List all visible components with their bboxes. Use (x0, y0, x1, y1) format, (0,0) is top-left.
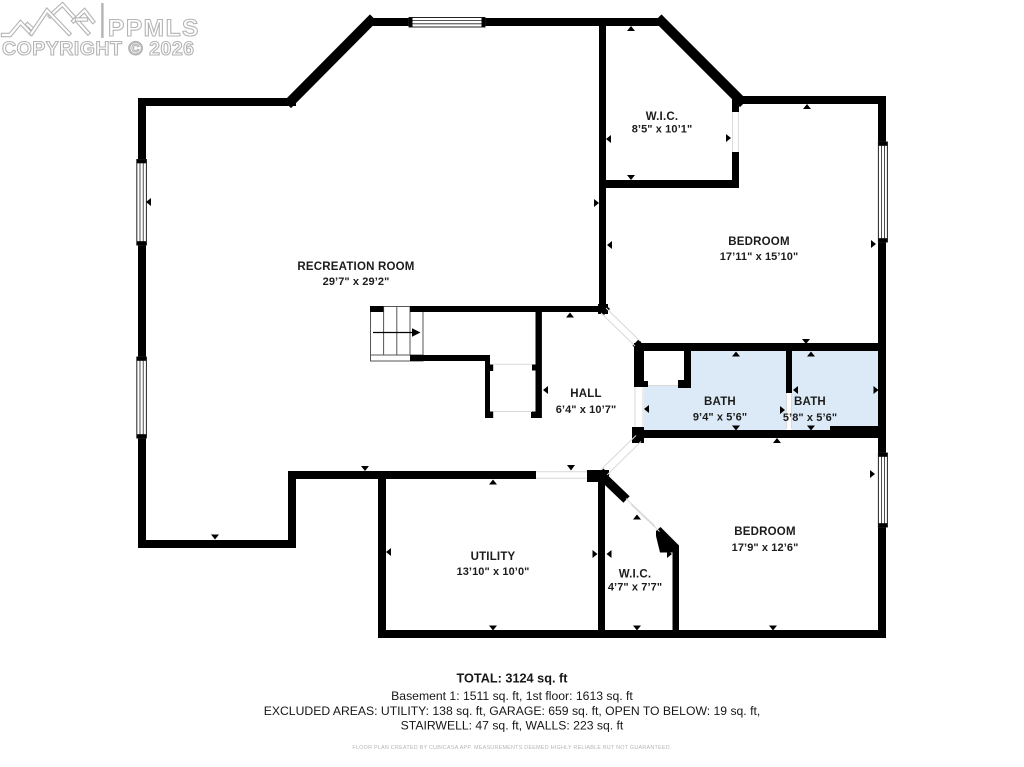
svg-text:STAIRWELL: 47 sq. ft, WALLS: 2: STAIRWELL: 47 sq. ft, WALLS: 223 sq. ft (401, 718, 624, 732)
svg-text:5’8" x 5’6": 5’8" x 5’6" (783, 412, 837, 424)
svg-text:HALL: HALL (570, 388, 601, 400)
svg-text:29’7" x 29’2": 29’7" x 29’2" (323, 276, 390, 288)
svg-text:9’4" x 5’6": 9’4" x 5’6" (693, 412, 747, 424)
svg-text:UTILITY: UTILITY (471, 551, 516, 563)
svg-text:COPYRIGHT © 2026: COPYRIGHT © 2026 (2, 38, 195, 60)
svg-text:FLOOR PLAN CREATED BY CUBICASA: FLOOR PLAN CREATED BY CUBICASA APP. MEAS… (352, 745, 671, 751)
svg-text:Basement 1: 1511 sq. ft, 1st f: Basement 1: 1511 sq. ft, 1st floor: 1613… (391, 689, 633, 703)
svg-text:13’10" x 10’0": 13’10" x 10’0" (457, 566, 530, 578)
svg-text:BATH: BATH (704, 396, 736, 408)
svg-text:RECREATION ROOM: RECREATION ROOM (297, 261, 414, 273)
svg-text:W.I.C.: W.I.C. (619, 569, 652, 581)
svg-text:17’11" x 15’10": 17’11" x 15’10" (720, 251, 799, 263)
svg-text:BATH: BATH (794, 396, 826, 408)
svg-text:EXCLUDED AREAS: UTILITY: 138 s: EXCLUDED AREAS: UTILITY: 138 sq. ft, GAR… (264, 704, 761, 718)
svg-text:6’4" x 10’7": 6’4" x 10’7" (556, 404, 617, 416)
svg-text:W.I.C.: W.I.C. (646, 111, 679, 123)
svg-text:BEDROOM: BEDROOM (728, 236, 789, 248)
svg-text:TOTAL: 3124 sq. ft: TOTAL: 3124 sq. ft (457, 672, 569, 686)
svg-text:4’7" x 7’7": 4’7" x 7’7" (608, 582, 662, 594)
svg-text:17’9" x 12’6": 17’9" x 12’6" (732, 542, 799, 554)
svg-text:8’5" x 10’1": 8’5" x 10’1" (632, 124, 693, 136)
svg-text:BEDROOM: BEDROOM (734, 526, 795, 538)
